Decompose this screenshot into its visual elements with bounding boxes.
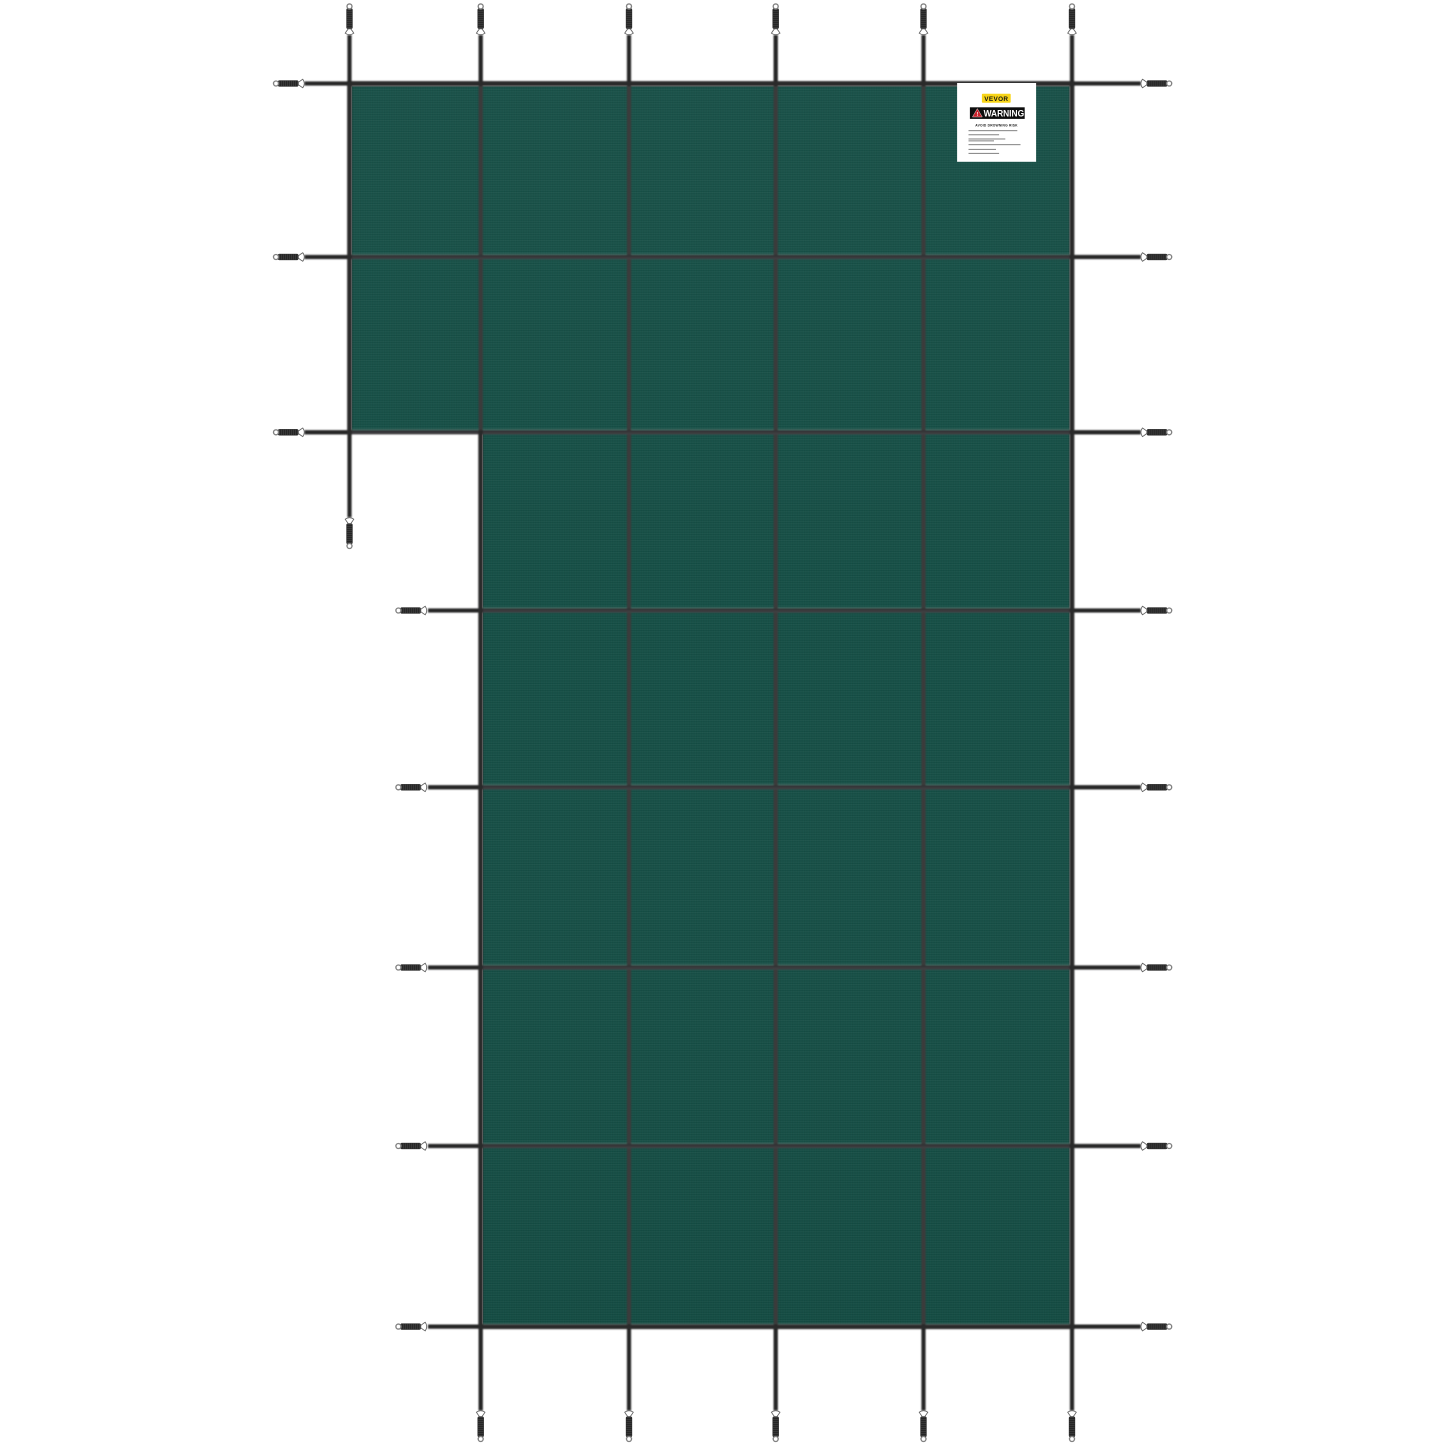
svg-text:WARNING: WARNING [984, 108, 1025, 118]
svg-text:!: ! [976, 112, 978, 118]
svg-text:AVOID DROWNING RISK: AVOID DROWNING RISK [975, 124, 1018, 128]
svg-text:VEVOR: VEVOR [984, 96, 1008, 103]
